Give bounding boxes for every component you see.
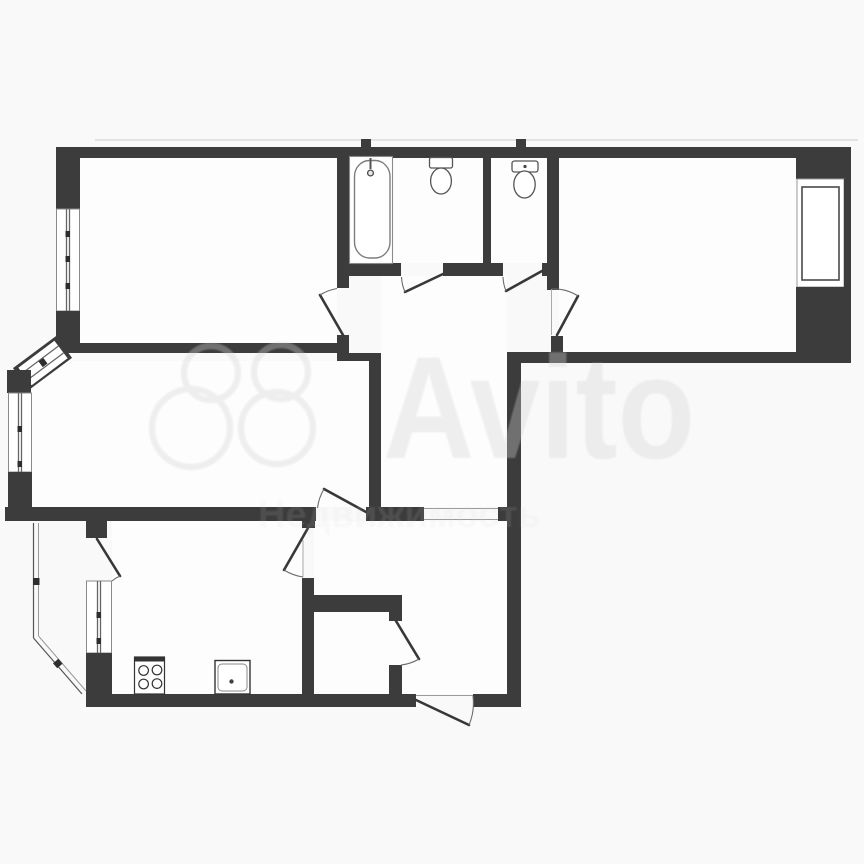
- svg-text:Недвижимость: Недвижимость: [258, 494, 541, 536]
- svg-text:Avito: Avito: [383, 326, 695, 489]
